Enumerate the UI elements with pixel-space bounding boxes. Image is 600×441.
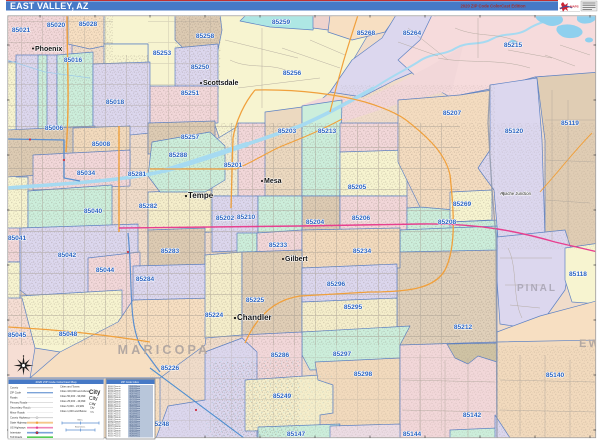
svg-text:85215: 85215 bbox=[504, 42, 523, 49]
svg-text:Apache Junction: Apache Junction bbox=[500, 191, 532, 196]
svg-text:Scottsdale: Scottsdale bbox=[203, 80, 239, 87]
svg-text:85225: 85225 bbox=[246, 297, 265, 304]
svg-text:85253: 85253 bbox=[153, 50, 172, 57]
svg-text:Kilometers: Kilometers bbox=[75, 426, 86, 429]
svg-text:85250: 85250 bbox=[191, 64, 210, 71]
svg-text:Cities 50,000 - 99,999: Cities 50,000 - 99,999 bbox=[60, 394, 86, 398]
svg-text:85226: 85226 bbox=[161, 365, 180, 372]
svg-text:85268: 85268 bbox=[357, 30, 376, 37]
svg-text:85264: 85264 bbox=[403, 30, 422, 37]
svg-text:2020 ZIP Code ColorCast Editio: 2020 ZIP Code ColorCast Edition bbox=[460, 4, 526, 9]
svg-text:85281: 85281 bbox=[128, 171, 147, 178]
svg-text:85118: 85118 bbox=[569, 271, 587, 278]
svg-text:85045: 85045 bbox=[8, 332, 27, 339]
svg-text:MARICOPA: MARICOPA bbox=[118, 343, 211, 357]
svg-text:85142: 85142 bbox=[463, 412, 482, 419]
svg-text:85258: 85258 bbox=[196, 33, 215, 40]
svg-text:85257: 85257 bbox=[181, 134, 200, 141]
svg-text:Gilbert: Gilbert bbox=[285, 256, 308, 263]
svg-text:85213: 85213 bbox=[318, 128, 337, 135]
svg-text:85006: 85006 bbox=[45, 125, 64, 132]
svg-text:85008: 85008 bbox=[92, 141, 111, 148]
svg-text:85297: 85297 bbox=[333, 351, 352, 358]
svg-text:85206: 85206 bbox=[352, 215, 371, 222]
svg-text:Cities and Towns: Cities and Towns bbox=[60, 385, 80, 389]
svg-text:85202 Phoenix: 85202 Phoenix bbox=[108, 435, 121, 437]
svg-text:85269: 85269 bbox=[453, 201, 472, 208]
svg-text:Cities 1,000 and Below: Cities 1,000 and Below bbox=[60, 409, 87, 413]
svg-text:Cities 100,000 and Above: Cities 100,000 and Above bbox=[60, 389, 90, 393]
svg-text:85207: 85207 bbox=[443, 110, 462, 117]
svg-text:Minor Roads: Minor Roads bbox=[10, 411, 25, 415]
svg-text:Tempe: Tempe bbox=[188, 191, 214, 200]
svg-text:85282: 85282 bbox=[139, 203, 158, 210]
svg-text:85295: 85295 bbox=[344, 304, 363, 311]
svg-text:Cities 5,000 - 24,999: Cities 5,000 - 24,999 bbox=[60, 404, 84, 408]
svg-text:85298: 85298 bbox=[354, 371, 373, 378]
svg-text:Mesa: Mesa bbox=[264, 178, 282, 185]
svg-text:85208: 85208 bbox=[438, 219, 457, 226]
svg-text:85204: 85204 bbox=[306, 219, 325, 226]
svg-text:City: City bbox=[89, 402, 96, 406]
svg-text:85202: 85202 bbox=[216, 215, 235, 222]
svg-text:85028: 85028 bbox=[79, 21, 98, 28]
svg-text:State Highways: State Highways bbox=[10, 421, 29, 425]
svg-text:85234: 85234 bbox=[353, 248, 372, 255]
svg-text:85256: 85256 bbox=[283, 70, 302, 77]
svg-text:85288: 85288 bbox=[169, 152, 188, 159]
svg-text:85040: 85040 bbox=[84, 208, 103, 215]
svg-text:85144: 85144 bbox=[403, 431, 422, 438]
svg-text:85147: 85147 bbox=[287, 431, 306, 438]
svg-text:85251: 85251 bbox=[181, 90, 200, 97]
svg-text:US Highways: US Highways bbox=[10, 426, 26, 430]
svg-text:Toll Roads: Toll Roads bbox=[10, 435, 23, 439]
svg-text:85140: 85140 bbox=[546, 372, 565, 379]
svg-text:Phoenix: Phoenix bbox=[35, 46, 62, 53]
svg-text:85119: 85119 bbox=[561, 120, 579, 127]
svg-text:85044: 85044 bbox=[96, 267, 115, 274]
svg-text:85205: 85205 bbox=[348, 184, 367, 191]
svg-text:85286: 85286 bbox=[271, 352, 290, 359]
svg-text:85048: 85048 bbox=[59, 331, 78, 338]
svg-text:85286 Mesa: 85286 Mesa bbox=[130, 435, 141, 437]
svg-text:Chandler: Chandler bbox=[237, 313, 272, 322]
svg-text:85041: 85041 bbox=[8, 235, 27, 242]
svg-text:85249: 85249 bbox=[273, 393, 292, 400]
svg-text:2020 ZIP Code ColorCast Map: 2020 ZIP Code ColorCast Map bbox=[36, 380, 77, 384]
svg-text:85042: 85042 bbox=[58, 252, 77, 259]
svg-text:85233: 85233 bbox=[269, 242, 288, 249]
svg-text:85016: 85016 bbox=[64, 57, 83, 64]
svg-text:Cities 25,000 - 49,999: Cities 25,000 - 49,999 bbox=[60, 399, 86, 403]
svg-text:Roads: Roads bbox=[10, 396, 18, 400]
svg-text:85020: 85020 bbox=[47, 22, 66, 29]
svg-text:85018: 85018 bbox=[106, 99, 125, 106]
svg-text:85284: 85284 bbox=[136, 276, 155, 283]
svg-text:85034: 85034 bbox=[77, 170, 96, 177]
svg-text:85120: 85120 bbox=[505, 128, 524, 135]
svg-text:Interstate: Interstate bbox=[10, 431, 21, 435]
svg-text:85201: 85201 bbox=[224, 162, 243, 169]
svg-text:ZIP Code: ZIP Code bbox=[10, 391, 21, 395]
svg-text:City: City bbox=[90, 406, 95, 410]
svg-text:County: County bbox=[10, 386, 19, 390]
svg-text:85212: 85212 bbox=[454, 324, 473, 331]
svg-text:85203: 85203 bbox=[278, 128, 297, 135]
svg-text:Primary Roads: Primary Roads bbox=[10, 401, 28, 405]
svg-text:85224: 85224 bbox=[205, 312, 224, 319]
svg-text:85296: 85296 bbox=[327, 281, 346, 288]
svg-text:85021: 85021 bbox=[12, 27, 31, 34]
svg-text:85210: 85210 bbox=[237, 214, 256, 221]
svg-text:ZIP Code Index: ZIP Code Index bbox=[121, 380, 140, 384]
svg-text:Miles: Miles bbox=[77, 420, 83, 422]
svg-text:PINAL: PINAL bbox=[517, 283, 557, 294]
svg-text:EAST VALLEY, AZ: EAST VALLEY, AZ bbox=[10, 1, 89, 11]
svg-text:85259: 85259 bbox=[272, 19, 291, 26]
svg-text:85283: 85283 bbox=[161, 248, 180, 255]
svg-text:MAPS: MAPS bbox=[570, 5, 579, 9]
